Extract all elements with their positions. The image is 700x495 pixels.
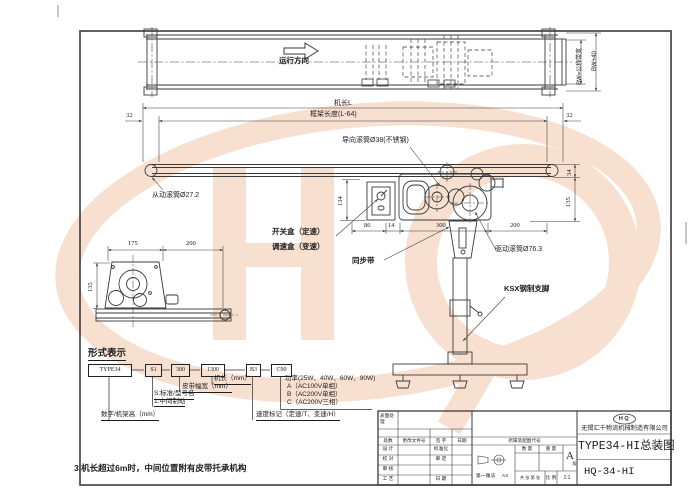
detail-dim-175: 175 (128, 241, 138, 248)
rev-header-doc: 更改文件号 (398, 439, 430, 444)
driven-roller-label: 从动滚筒Ø27.2 (152, 192, 199, 199)
assembly-code-label: 所属装配图代号 (472, 439, 577, 444)
rev-header-date: 日期 (452, 439, 472, 444)
drive-roller-label: 驱动滚筒Ø76.3 (495, 246, 542, 253)
dim-134: 134 (338, 196, 345, 206)
model-code-segment-type: TYPE34 (88, 364, 132, 377)
code-middle-drive-label: 1:中间制动 (154, 399, 185, 408)
scale-label: 比 例 (545, 476, 557, 481)
top-view-linework (138, 27, 601, 97)
overall-width-dim-label: BW+40 (592, 51, 598, 71)
weight-label: 重 量 (539, 447, 563, 452)
model-code-heading: 形式表示 (88, 349, 126, 361)
rev-header-sign: 签 字 (430, 439, 452, 444)
role-check: 校 对 (378, 458, 398, 463)
dim-300: 300 (436, 223, 446, 230)
code-power-c-label: C（AC200V三相） (287, 400, 342, 407)
detail-dim-135: 135 (88, 282, 95, 292)
code-speed-mark-label: 速度标记（定速/T、变速/H） (256, 412, 340, 421)
code-power-a-label: A（AC100V单相） (287, 384, 342, 391)
hq-logo: HQ (614, 417, 636, 423)
drawing-linework (0, 0, 700, 495)
role-approve: 审 定 (430, 458, 452, 463)
machine-length-label: 机长L (334, 100, 352, 107)
support-leg-label: KSX钢制支脚 (504, 285, 549, 293)
drawing-title: TYPE34-HI总装图 (578, 441, 671, 453)
guide-roller-label: 导向滚筒Ø38(不锈钢) (342, 137, 409, 144)
quantity-label: 数 量 (515, 447, 539, 452)
end-offset-right-dim: 32 (566, 113, 573, 120)
code-power-label: 功率(25W、40W、60W、90W) (285, 376, 375, 383)
speed-box-label: 调速盒（变速） (272, 243, 325, 251)
belt-width-dim-label: BW=公称带宽 (577, 48, 583, 85)
detail-dim-200: 200 (186, 241, 196, 248)
scale-value: 1:1 (557, 476, 577, 481)
sheet-info-label: 共 张 第 张 (515, 476, 545, 480)
model-code-segment-s1: S1 (145, 364, 162, 377)
drawing-sheet: 运行方向 BW=公称带宽 BW+40 机长L 框架长度(L-64) 32 32 … (0, 0, 700, 495)
code-frame-height-label: 数字/机架高（mm） (101, 412, 159, 421)
role-process: 工 艺 (378, 478, 398, 483)
stage-suffix: 版 (573, 462, 577, 466)
company-name: 无锡汇千物流机械制造有限公司 (578, 426, 671, 432)
frame-length-label: 框架长度(L-64) (310, 111, 357, 118)
role-review: 审 核 (378, 468, 398, 473)
projection-label: 第一角法 (476, 475, 495, 480)
role-standardize: 标准化 (430, 448, 452, 453)
run-direction-label: 运行方向 (279, 57, 309, 65)
switch-box-label: 开关盒（定速） (272, 228, 325, 236)
dim-14: 14 (388, 223, 395, 230)
model-code-segment-300: 300 (171, 364, 190, 377)
sheet-size-label: A3 (502, 475, 508, 480)
timing-belt-label: 同步带 (352, 257, 375, 265)
rev-header-count: 处数 (378, 439, 398, 444)
end-offset-left-dim: 32 (126, 113, 133, 120)
code-power-b-label: B（AC200V单相） (287, 392, 342, 399)
dim-86: 86 (364, 223, 371, 230)
drawing-number: HQ-34-HI (584, 467, 634, 478)
role-design: 设 计 (378, 448, 398, 453)
dim-200: 200 (510, 223, 520, 230)
note-text: 3.机长超过6m时，中间位置附有皮带托承机构 (74, 464, 246, 473)
dim-135-front: 135 (566, 197, 573, 207)
role-date: 日 期 (430, 478, 452, 483)
dim-34: 34 (567, 170, 574, 177)
surface-treatment-label: 表面处理 (380, 413, 396, 425)
